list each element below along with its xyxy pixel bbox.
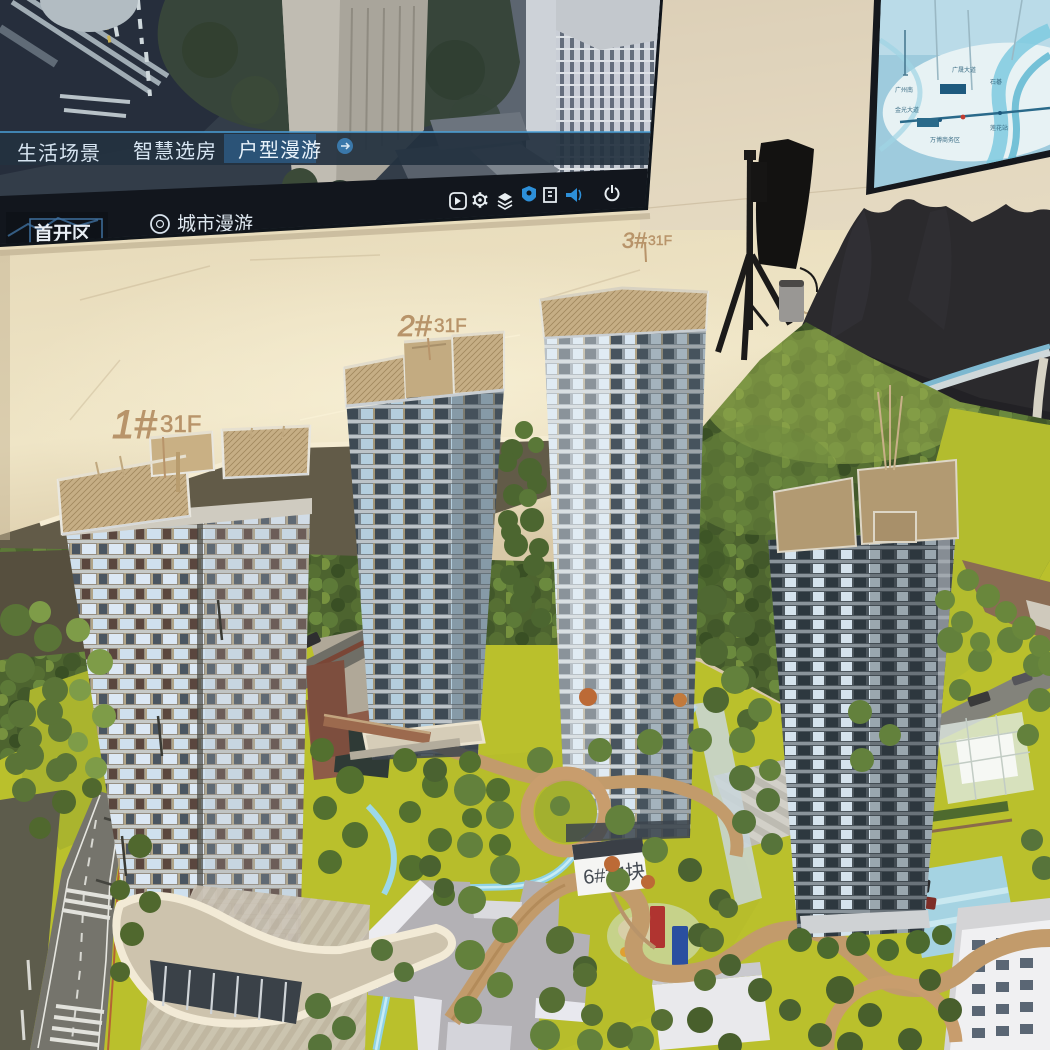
svg-text:2#: 2#	[397, 310, 432, 343]
svg-text:智慧选房: 智慧选房	[133, 140, 217, 163]
svg-text:31F: 31F	[434, 316, 467, 337]
svg-text:石碁: 石碁	[990, 78, 1002, 86]
svg-text:31F: 31F	[160, 411, 201, 438]
svg-text:广晟大道: 广晟大道	[952, 66, 976, 74]
svg-text:生活场景: 生活场景	[17, 142, 101, 165]
svg-text:金光大道: 金光大道	[895, 106, 919, 114]
svg-text:3#: 3#	[622, 228, 647, 253]
svg-text:1#: 1#	[112, 403, 157, 447]
svg-text:莲花站: 莲花站	[990, 124, 1008, 132]
svg-text:广州南: 广州南	[895, 86, 913, 94]
svg-text:31F: 31F	[648, 232, 672, 248]
svg-text:户型漫游: 户型漫游	[238, 139, 322, 162]
svg-text:万博商务区: 万博商务区	[930, 136, 960, 144]
